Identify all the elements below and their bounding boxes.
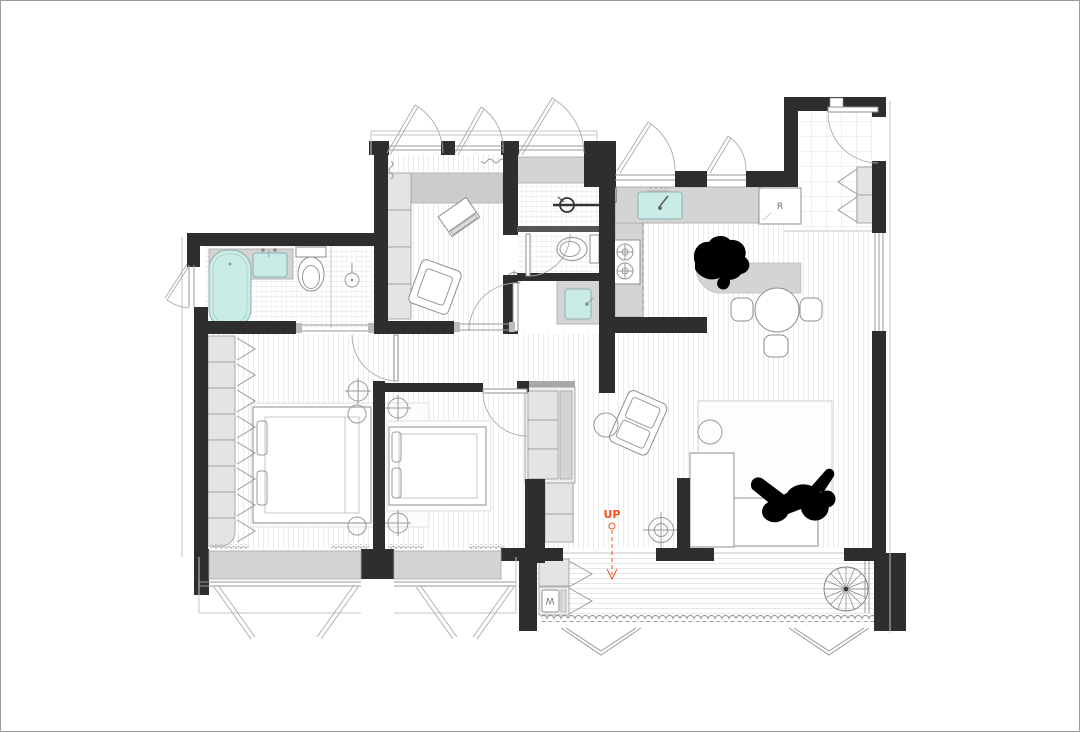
dining-chair-bottom [764, 335, 788, 357]
bed1-frame [253, 407, 371, 523]
balcony-edge-insulation [541, 615, 874, 622]
floor-plan-drawing: R [1, 1, 1080, 732]
kitchen-faucet-dot [658, 206, 662, 210]
top-window-outer-frame [371, 131, 597, 155]
study-cabinet-band [411, 173, 503, 203]
toilet-middle [557, 235, 599, 263]
sofa-back [690, 453, 734, 547]
bay-window-leaves [214, 585, 514, 639]
kitchen-window-casements [617, 122, 746, 173]
bath-window-leaf [165, 264, 189, 308]
toilet-main [296, 247, 326, 291]
bed2-frame [389, 427, 486, 505]
bay1-seat [209, 551, 361, 579]
balcony-bifold-doors [561, 628, 869, 655]
kitchen-counter-top [615, 187, 761, 223]
bath-faucet-dot2 [273, 248, 277, 252]
dining-chair-right [800, 298, 822, 321]
bathtub-drain [228, 262, 231, 265]
washer-label: W [545, 595, 554, 605]
wardrobe-bed2 [525, 381, 575, 483]
bath-window-glass [189, 265, 194, 307]
dining-chair-left [731, 298, 753, 321]
dining-table [755, 288, 799, 332]
refrigerator: R [759, 188, 801, 224]
balcony-deck-floor [537, 557, 874, 617]
refrigerator-label: R [777, 202, 783, 212]
cabinet-living-side [545, 483, 573, 542]
balcony-cabinet [539, 559, 569, 586]
up-label: UP [604, 508, 621, 521]
bay2-seat [394, 551, 501, 579]
bath-sink [253, 253, 287, 277]
bedroom-bay-windows [199, 551, 516, 639]
floor-plan-canvas: R [0, 0, 1080, 732]
study-shelving [387, 173, 411, 319]
study-window-glass [389, 146, 584, 150]
living-window-right-glass [875, 233, 883, 331]
washing-machine: W [539, 587, 569, 615]
bath-faucet-dot [261, 248, 265, 252]
tree-plant [824, 567, 868, 611]
